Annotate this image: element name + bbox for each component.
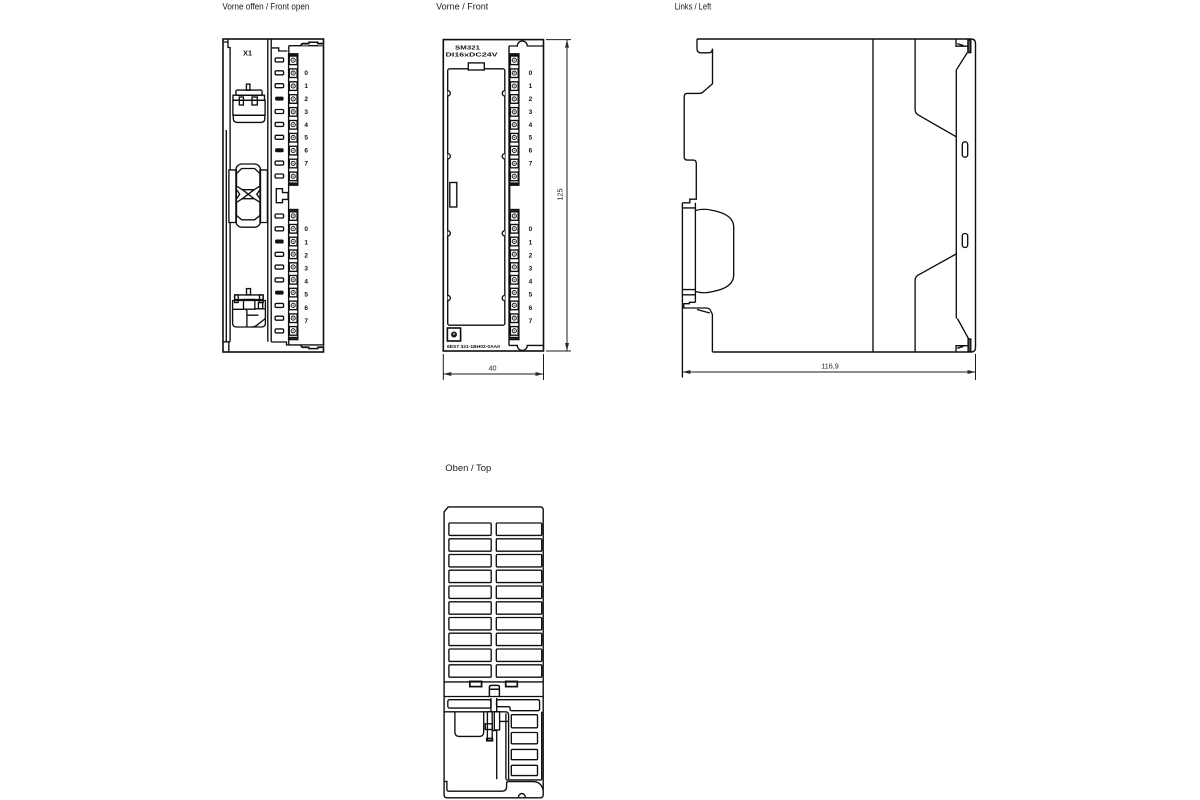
svg-text:DI16xDC24V: DI16xDC24V <box>446 53 498 59</box>
svg-text:7: 7 <box>529 161 533 168</box>
svg-text:4: 4 <box>529 122 533 129</box>
svg-text:0: 0 <box>529 70 533 77</box>
svg-text:2: 2 <box>304 96 308 103</box>
svg-text:6: 6 <box>529 148 533 155</box>
svg-text:Oben / Top: Oben / Top <box>445 463 491 473</box>
svg-text:X1: X1 <box>243 50 252 57</box>
svg-text:5: 5 <box>304 292 308 299</box>
svg-text:Vorne offen / Front open: Vorne offen / Front open <box>222 1 309 11</box>
svg-text:6: 6 <box>304 305 308 312</box>
svg-text:1: 1 <box>304 83 308 90</box>
svg-text:7: 7 <box>529 318 533 325</box>
svg-text:SM321: SM321 <box>455 46 480 52</box>
svg-text:4: 4 <box>529 279 533 286</box>
svg-text:7: 7 <box>304 318 308 325</box>
svg-text:2: 2 <box>304 252 308 259</box>
svg-text:6: 6 <box>304 148 308 155</box>
svg-text:1: 1 <box>304 239 308 246</box>
svg-text:6: 6 <box>529 305 533 312</box>
svg-text:3: 3 <box>304 266 308 273</box>
svg-text:3: 3 <box>529 266 533 273</box>
svg-text:Links / Left: Links / Left <box>675 1 712 11</box>
svg-text:5: 5 <box>529 135 533 142</box>
svg-text:3: 3 <box>529 109 533 116</box>
svg-text:Vorne / Front: Vorne / Front <box>436 1 489 11</box>
svg-text:0: 0 <box>304 70 308 77</box>
svg-text:40: 40 <box>489 363 497 372</box>
svg-text:5: 5 <box>304 135 308 142</box>
svg-text:5: 5 <box>529 292 533 299</box>
svg-text:7: 7 <box>304 161 308 168</box>
svg-text:0: 0 <box>304 226 308 233</box>
svg-text:4: 4 <box>304 122 308 129</box>
svg-text:116,9: 116,9 <box>821 362 838 371</box>
svg-text:2: 2 <box>529 252 533 259</box>
svg-text:6ES7 321-1BH02-0AA0: 6ES7 321-1BH02-0AA0 <box>447 344 500 350</box>
svg-text:4: 4 <box>304 279 308 286</box>
svg-text:2: 2 <box>529 96 533 103</box>
svg-text:1: 1 <box>529 83 533 90</box>
svg-text:0: 0 <box>529 226 533 233</box>
svg-text:1: 1 <box>529 239 533 246</box>
svg-text:125: 125 <box>556 189 565 201</box>
svg-text:3: 3 <box>304 109 308 116</box>
